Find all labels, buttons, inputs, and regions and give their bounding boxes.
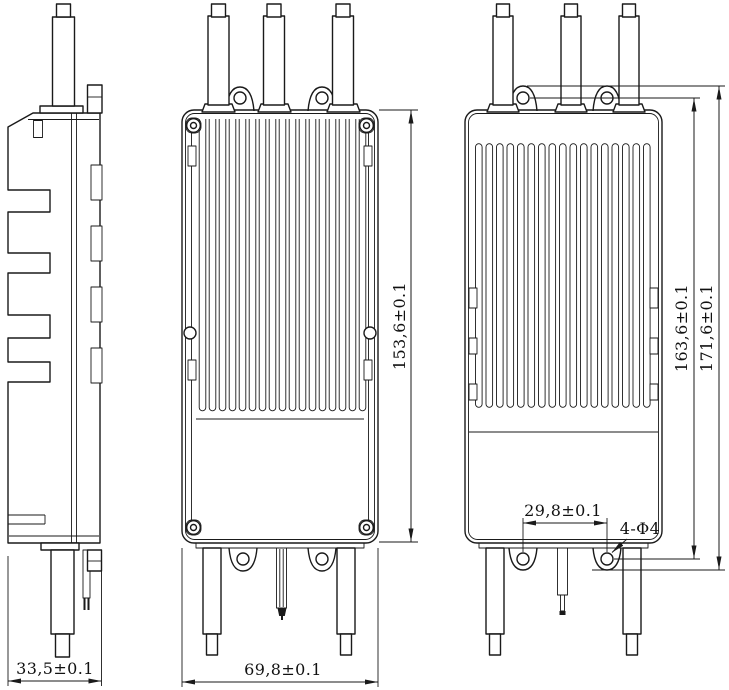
dimensions: 33,5±0.1 69,8±0.1 153,6±0.1 163,6±0.1 17… [8, 86, 725, 687]
side-top-connector-pad [40, 106, 83, 113]
heatsink-fin-slot [259, 119, 266, 411]
front-corner-screw [187, 521, 201, 535]
heatsink-fin-slot [602, 144, 609, 408]
back-heatsink-fins [476, 144, 651, 408]
dim-overall-length-label: 171,6±0.1 [697, 284, 716, 372]
side-view [8, 4, 102, 657]
heatsink-fin-slot [329, 119, 336, 411]
heatsink-fin-slot [279, 119, 286, 411]
side-fin-block [91, 165, 102, 200]
side-top-tab [34, 121, 43, 138]
heatsink-fin-slot [623, 144, 630, 408]
heatsink-fin-slot [269, 119, 276, 411]
heatsink-fin-slot [219, 119, 226, 411]
front-bottom-ear-hole [316, 553, 328, 565]
heatsink-fin-slot [289, 119, 296, 411]
heatsink-fin-slot [560, 144, 567, 408]
back-phase-connector [619, 16, 639, 105]
dim-hole-span-length-label: 163,6±0.1 [672, 284, 691, 372]
back-phase-connector [561, 16, 581, 105]
heatsink-fin-slot [497, 144, 504, 408]
heatsink-fin-slot [539, 144, 546, 408]
heatsink-fin-slot [581, 144, 588, 408]
front-corner-screw [360, 119, 374, 133]
front-heatsink-fins [199, 119, 366, 411]
heatsink-fin-slot [507, 144, 514, 408]
front-power-connector [203, 548, 221, 634]
back-bottom-ear-hole [601, 553, 613, 565]
esc-engineering-drawing: 33,5±0.1 69,8±0.1 153,6±0.1 163,6±0.1 17… [0, 0, 729, 690]
front-top-ear-hole [234, 92, 246, 104]
front-corner-screw [360, 521, 374, 535]
heatsink-fin-slot [249, 119, 256, 411]
front-body-outline [182, 110, 378, 543]
heatsink-fin-slot [229, 119, 236, 411]
heatsink-fin-slot [591, 144, 598, 408]
heatsink-fin-slot [549, 144, 556, 408]
heatsink-fin-slot [309, 119, 316, 411]
back-top-ear-hole [517, 92, 529, 104]
side-top-ear-profile [88, 85, 103, 113]
front-view [182, 4, 378, 655]
heatsink-fin-slot [339, 119, 346, 411]
side-fin-block [91, 287, 102, 322]
dim-body-length-label: 153,6±0.1 [390, 282, 409, 370]
back-body-outline [465, 110, 662, 543]
dim-side-width-label: 33,5±0.1 [16, 659, 94, 678]
side-body-outline [8, 113, 100, 543]
side-bottom-connector-pad [41, 543, 79, 550]
back-signal-wire [558, 548, 568, 595]
heatsink-fin-slot [528, 144, 535, 408]
front-bottom-ear-hole [237, 553, 249, 565]
heatsink-fin-slot [476, 144, 483, 408]
heatsink-fin-slot [199, 119, 206, 411]
back-power-connector [486, 548, 504, 634]
heatsink-fin-slot [570, 144, 577, 408]
heatsink-fin-slot [644, 144, 651, 408]
hole-callout-label: 4-Φ4 [620, 519, 660, 538]
heatsink-fin-slot [486, 144, 493, 408]
front-phase-connector [333, 16, 354, 105]
front-phase-connector [208, 16, 229, 105]
front-phase-connector [264, 16, 285, 105]
heatsink-fin-slot [239, 119, 246, 411]
side-bottom-connector-tip [56, 634, 70, 657]
dim-front-width-label: 69,8±0.1 [244, 660, 322, 679]
heatsink-fin-slot [518, 144, 525, 408]
heatsink-fin-slot [209, 119, 216, 411]
front-mid-hole [184, 327, 196, 339]
side-bottom-connector [51, 550, 74, 634]
heatsink-fin-slot [349, 119, 356, 411]
front-power-connector [337, 548, 355, 634]
side-top-connector [53, 17, 75, 106]
heatsink-fin-slot [299, 119, 306, 411]
back-bottom-ear-hole [517, 553, 529, 565]
dim-bottom-hole-span-label: 29,8±0.1 [524, 501, 602, 520]
drawing-sheet: 33,5±0.1 69,8±0.1 153,6±0.1 163,6±0.1 17… [0, 0, 729, 690]
back-power-connector [623, 548, 641, 634]
back-phase-connector [493, 16, 513, 105]
heatsink-fin-slot [612, 144, 619, 408]
front-corner-screw [187, 119, 201, 133]
side-bottom-ear-profile [88, 550, 102, 571]
side-top-connector-tip [57, 4, 71, 17]
heatsink-fin-slot [633, 144, 640, 408]
side-fin-block [91, 348, 102, 383]
front-mid-hole [364, 327, 376, 339]
front-signal-wire [277, 548, 287, 608]
front-top-ear-hole [316, 92, 328, 104]
back-view [465, 4, 662, 655]
side-fin-block [91, 226, 102, 261]
heatsink-fin-slot [319, 119, 326, 411]
